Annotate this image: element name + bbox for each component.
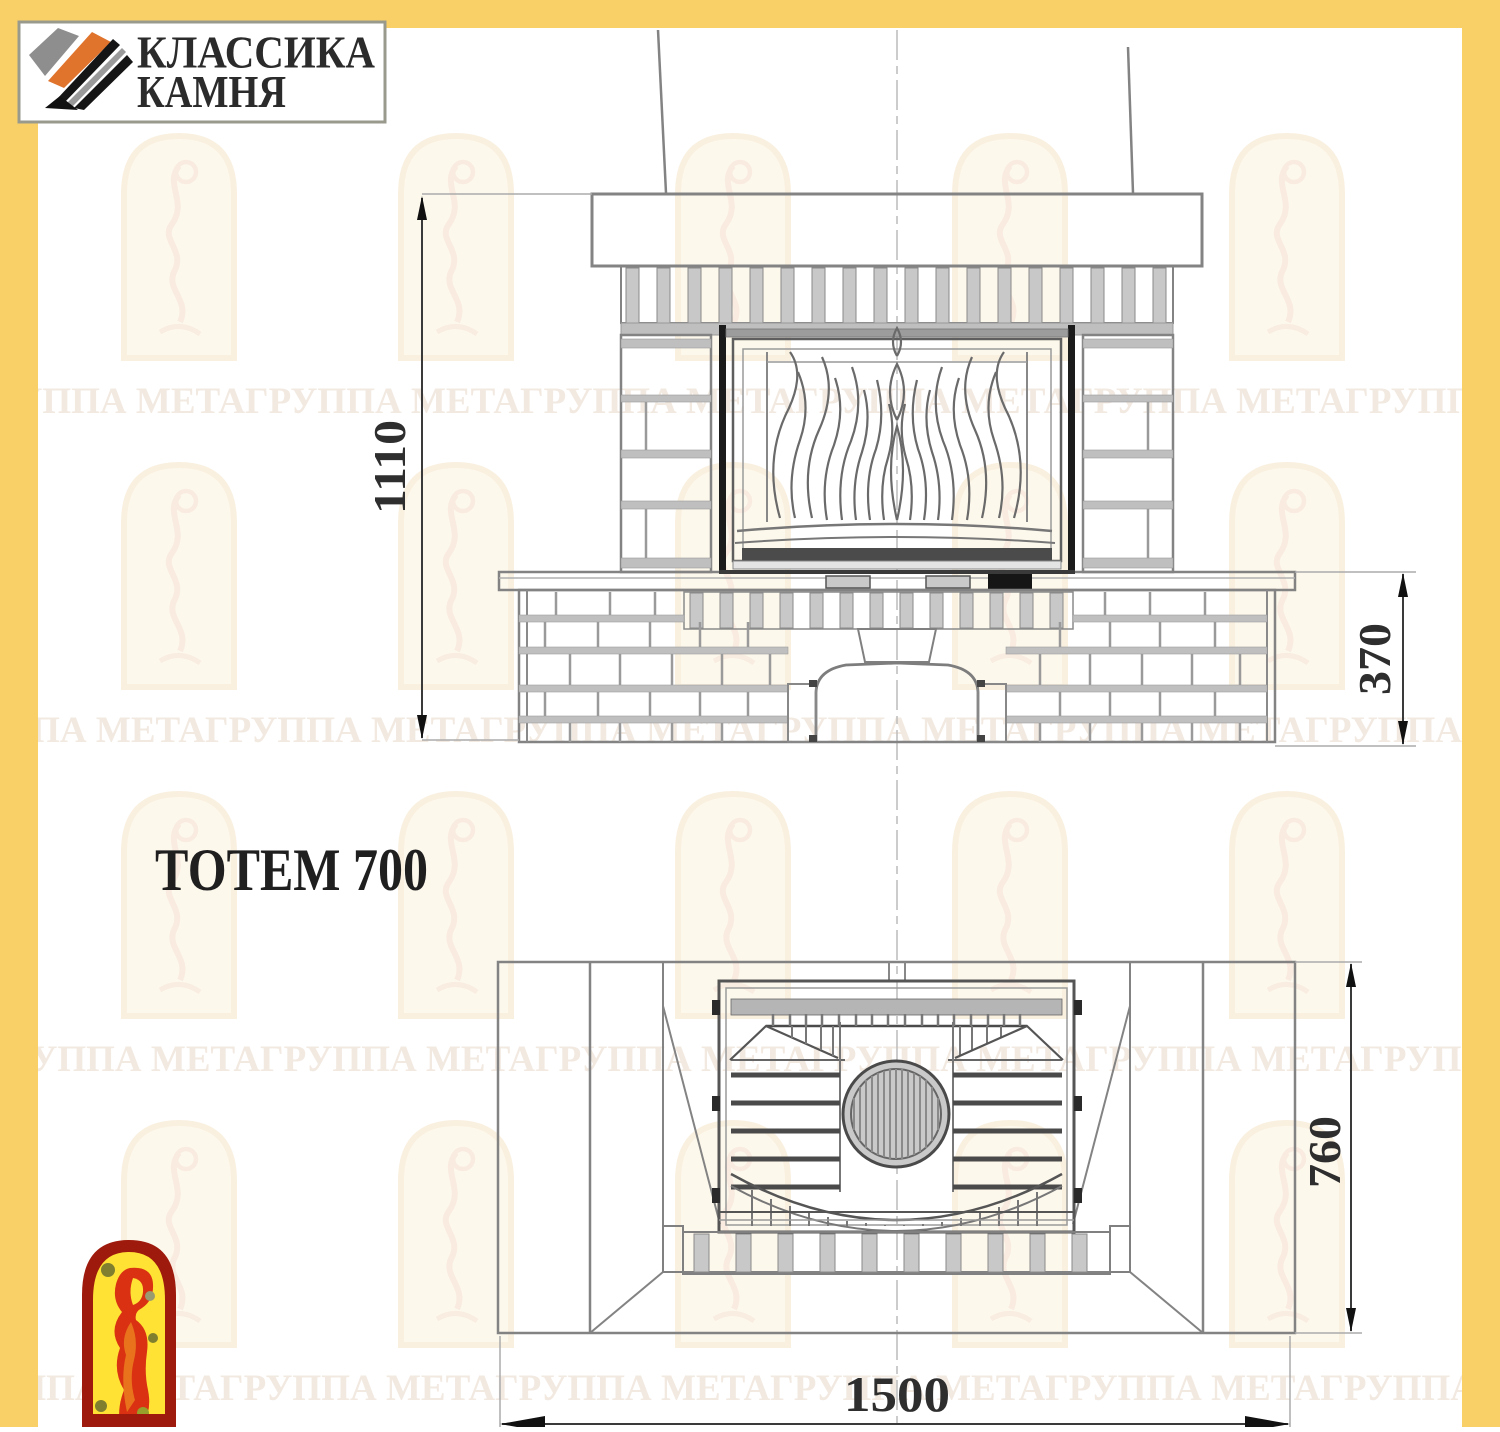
svg-text:370: 370 xyxy=(1349,623,1400,695)
svg-text:760: 760 xyxy=(1299,1116,1350,1188)
svg-text:ТОТЕМ 700: ТОТЕМ 700 xyxy=(155,837,428,903)
svg-text:1110: 1110 xyxy=(364,420,415,514)
svg-text:КАМНЯ: КАМНЯ xyxy=(137,66,286,117)
svg-text:ГРУППА МЕТАГРУППА МЕТАГРУППА М: ГРУППА МЕТАГРУППА МЕТАГРУППА МЕТАГРУППА … xyxy=(0,1368,1500,1409)
svg-text:1500: 1500 xyxy=(844,1366,950,1422)
svg-text:ГРУППА МЕТАГРУППА МЕТАГРУППА М: ГРУППА МЕТАГРУППА МЕТАГРУППА МЕТАГРУППА … xyxy=(0,381,1500,422)
